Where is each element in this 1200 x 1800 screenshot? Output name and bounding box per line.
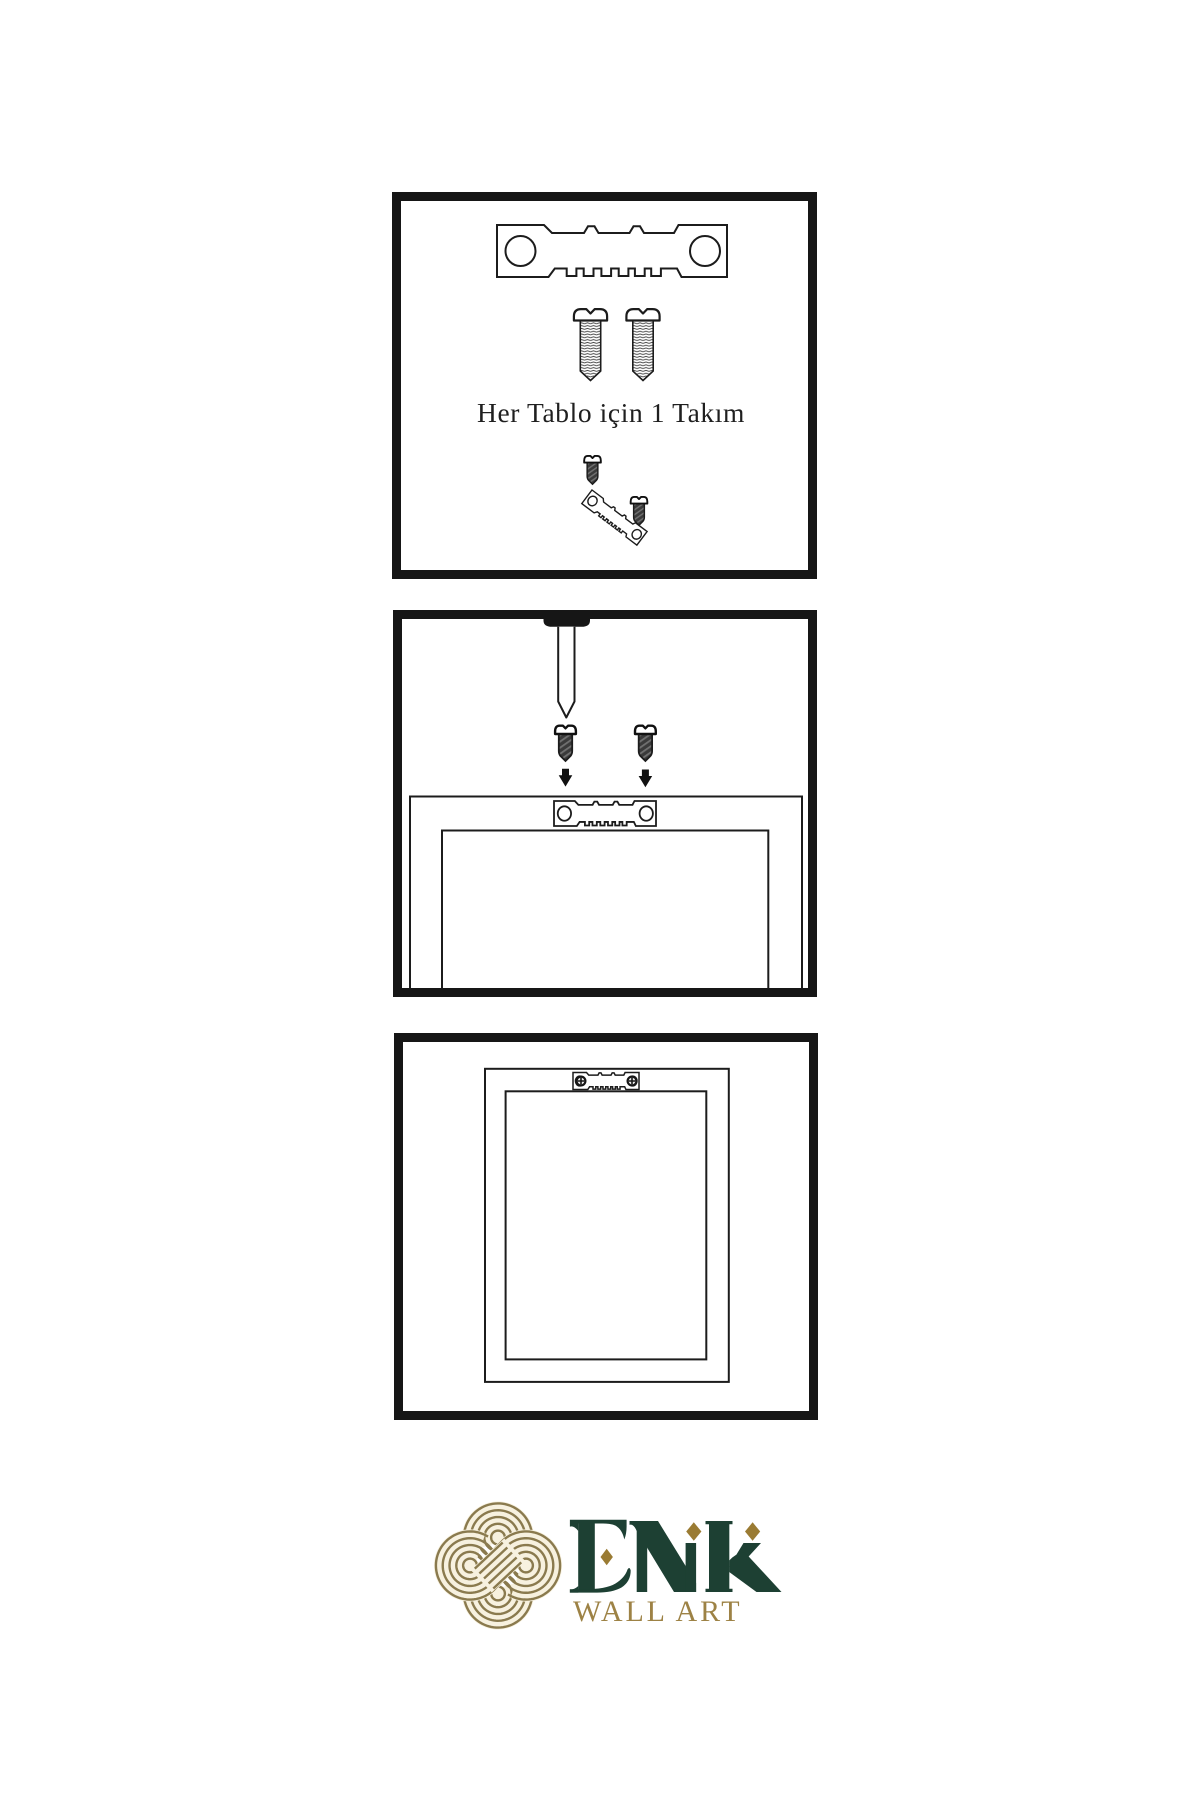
svg-text:WALL ART: WALL ART — [573, 1595, 742, 1628]
svg-text:Her Tablo için 1 Takım: Her Tablo için 1 Takım — [477, 397, 745, 428]
